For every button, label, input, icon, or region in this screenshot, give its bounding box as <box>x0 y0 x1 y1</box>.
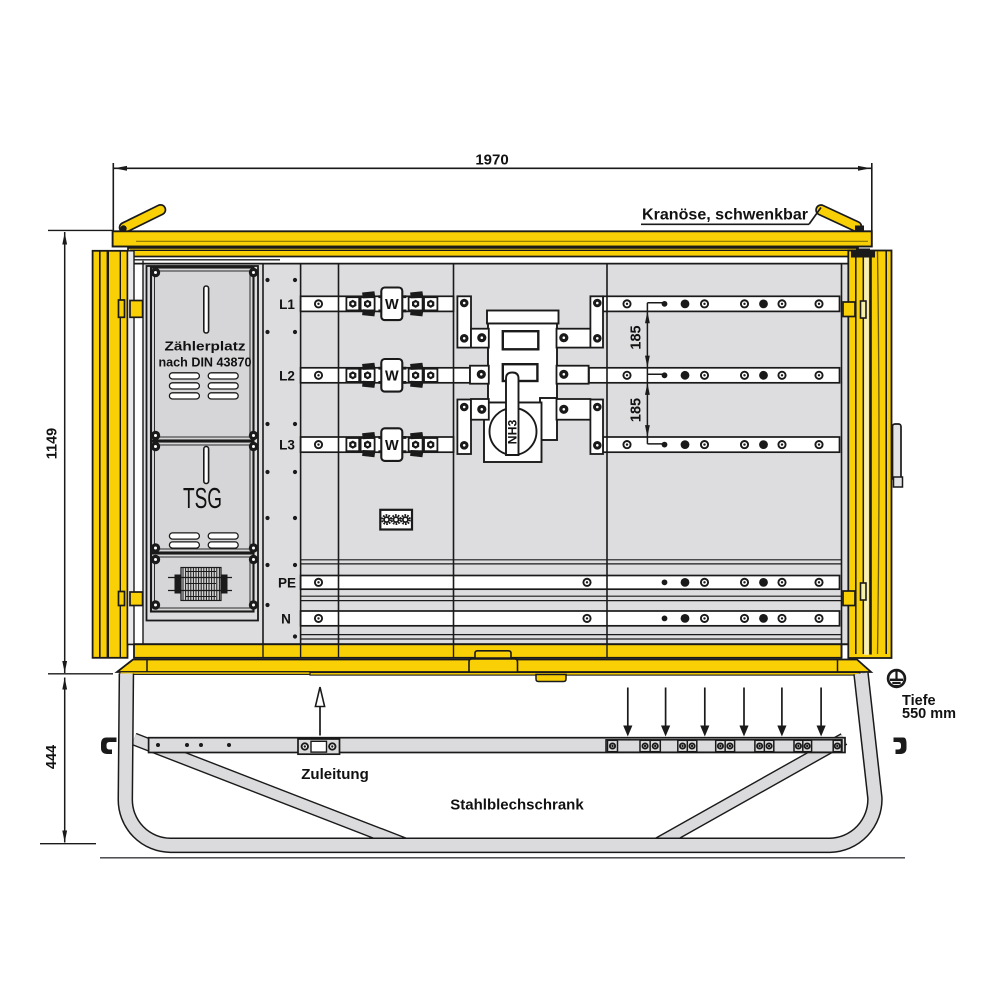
svg-text:Zählerplatz: Zählerplatz <box>165 339 247 354</box>
svg-text:L1: L1 <box>279 297 295 312</box>
svg-text:Kranöse, schwenkbar: Kranöse, schwenkbar <box>642 207 808 224</box>
svg-text:Zuleitung: Zuleitung <box>301 766 369 783</box>
svg-text:W: W <box>385 369 399 385</box>
svg-text:PE: PE <box>278 576 296 591</box>
svg-text:N: N <box>281 612 291 627</box>
svg-text:W: W <box>385 297 399 313</box>
svg-text:1149: 1149 <box>45 428 61 459</box>
svg-text:TSG: TSG <box>183 483 222 515</box>
svg-text:185: 185 <box>629 325 645 349</box>
svg-text:L3: L3 <box>279 438 295 453</box>
svg-text:550 mm: 550 mm <box>902 706 956 722</box>
svg-text:185: 185 <box>629 398 645 422</box>
svg-text:W: W <box>385 438 399 454</box>
svg-text:L2: L2 <box>279 369 295 384</box>
svg-text:NH3: NH3 <box>505 420 519 445</box>
svg-text:1970: 1970 <box>475 152 508 169</box>
svg-text:nach DIN 43870: nach DIN 43870 <box>159 355 252 370</box>
svg-text:Stahlblechschrank: Stahlblechschrank <box>450 797 584 814</box>
svg-text:444: 444 <box>44 745 60 769</box>
